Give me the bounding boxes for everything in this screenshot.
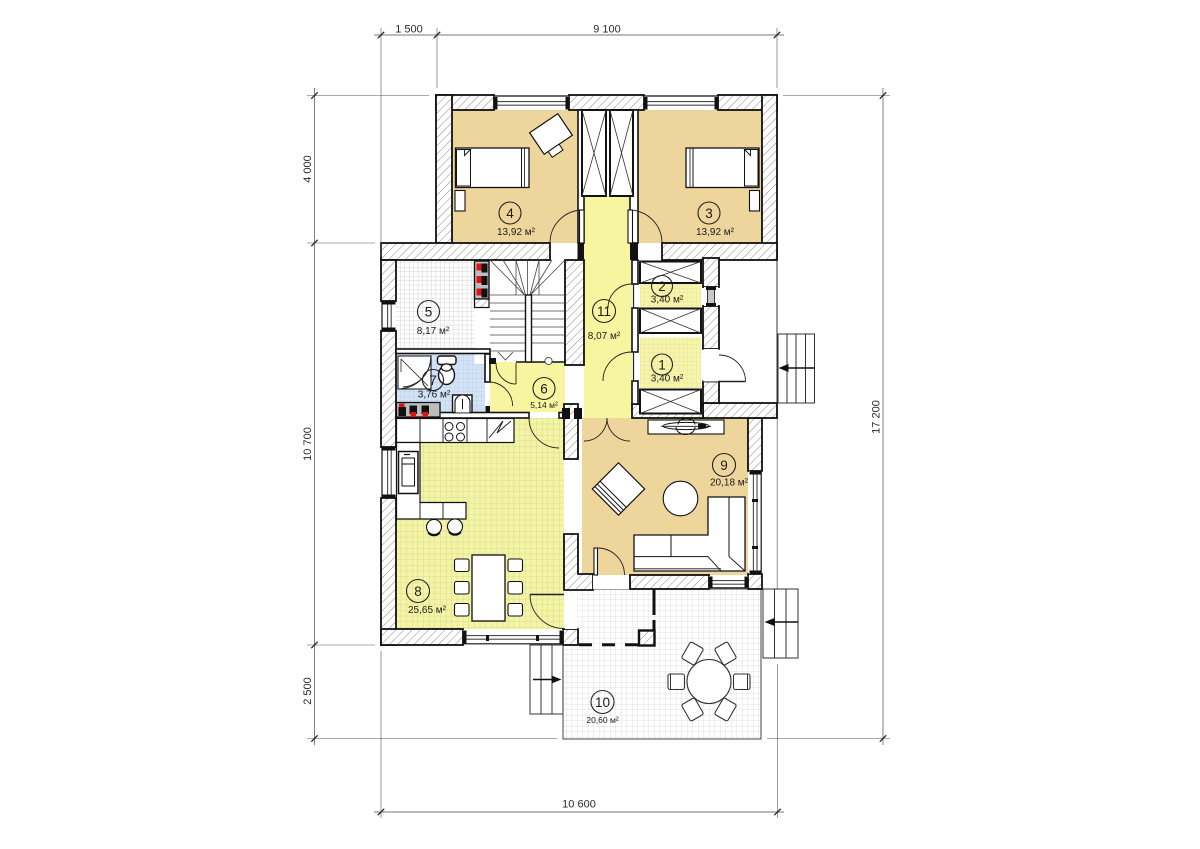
svg-text:20,60 м²: 20,60 м² — [586, 715, 618, 725]
svg-text:3,76 м²: 3,76 м² — [418, 390, 451, 401]
svg-text:1 500: 1 500 — [395, 24, 423, 36]
svg-text:4 000: 4 000 — [302, 155, 314, 183]
svg-text:5: 5 — [425, 304, 433, 319]
svg-text:13,92 м²: 13,92 м² — [696, 227, 735, 238]
svg-text:10 700: 10 700 — [302, 427, 314, 461]
svg-text:7: 7 — [429, 373, 437, 388]
svg-text:8: 8 — [414, 584, 422, 599]
svg-text:2: 2 — [658, 279, 666, 294]
svg-text:1: 1 — [658, 357, 666, 372]
svg-text:3,40 м²: 3,40 м² — [651, 374, 684, 385]
svg-text:13,92 м²: 13,92 м² — [497, 227, 536, 238]
svg-text:9 100: 9 100 — [593, 24, 621, 36]
svg-text:10 600: 10 600 — [562, 799, 596, 811]
svg-text:5,14 м²: 5,14 м² — [530, 400, 558, 410]
svg-text:8,17 м²: 8,17 м² — [417, 326, 450, 337]
svg-text:20,18 м²: 20,18 м² — [710, 478, 749, 489]
svg-text:2 500: 2 500 — [302, 677, 314, 705]
svg-text:4: 4 — [506, 206, 514, 221]
svg-text:6: 6 — [540, 381, 548, 396]
svg-text:10: 10 — [595, 695, 610, 710]
svg-text:11: 11 — [597, 304, 611, 319]
svg-text:25,65 м²: 25,65 м² — [408, 605, 447, 616]
svg-text:9: 9 — [720, 458, 728, 473]
svg-text:8,07 м²: 8,07 м² — [588, 331, 621, 342]
svg-text:3,40 м²: 3,40 м² — [651, 295, 684, 306]
svg-text:3: 3 — [705, 206, 713, 221]
svg-text:17 200: 17 200 — [871, 400, 883, 434]
